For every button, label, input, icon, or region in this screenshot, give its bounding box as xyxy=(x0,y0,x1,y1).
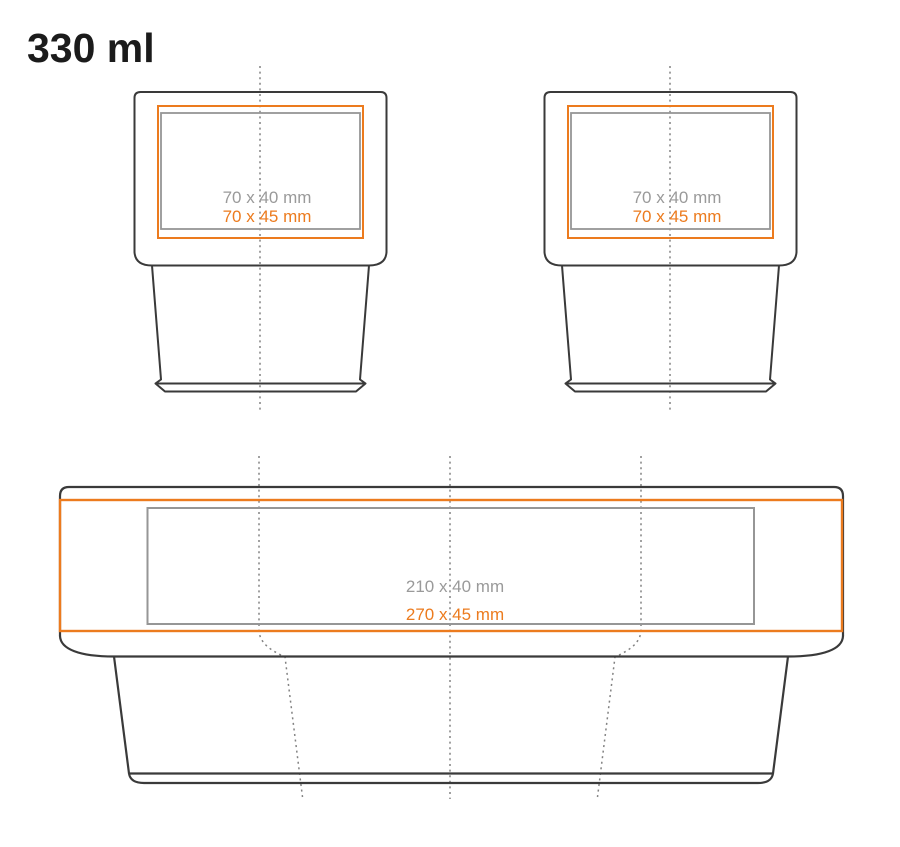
cup-back-label-standard: 70 x 40 mm xyxy=(633,188,722,207)
cup-front-view: 70 x 40 mm 70 x 45 mm xyxy=(135,66,387,411)
wrap-label-standard: 210 x 40 mm xyxy=(406,577,504,596)
cup-front-label-standard: 70 x 40 mm xyxy=(223,188,312,207)
print-spec-page: 330 ml 70 x 40 mm 70 x 45 mm 70 x 40 mm … xyxy=(0,0,900,847)
cup-front-label-max: 70 x 45 mm xyxy=(223,207,312,226)
page-title: 330 ml xyxy=(27,25,155,71)
wrap-view: 210 x 40 mm 270 x 45 mm xyxy=(60,456,843,799)
cup-back-view: 70 x 40 mm 70 x 45 mm xyxy=(545,66,797,411)
wrap-body-outline xyxy=(60,636,843,783)
wrap-label-max: 270 x 45 mm xyxy=(406,605,504,624)
print-spec-diagram: 330 ml 70 x 40 mm 70 x 45 mm 70 x 40 mm … xyxy=(0,0,900,847)
cup-back-label-max: 70 x 45 mm xyxy=(633,207,722,226)
